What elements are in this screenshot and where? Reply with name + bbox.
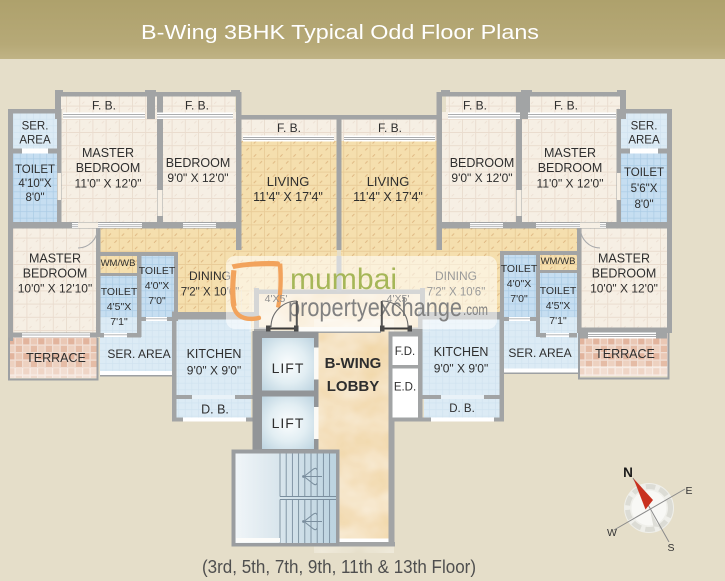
svg-text:11'0" X 12'0": 11'0" X 12'0"	[537, 177, 604, 191]
svg-text:TOILET: TOILET	[15, 164, 55, 176]
svg-text:DINING: DINING	[435, 269, 477, 283]
svg-text:.com: .com	[463, 302, 488, 319]
svg-text:D. B.: D. B.	[201, 403, 229, 417]
svg-text:MASTER: MASTER	[29, 252, 81, 266]
svg-text:TOILET: TOILET	[624, 167, 664, 179]
svg-text:W: W	[607, 527, 617, 539]
svg-text:propertyexchange: propertyexchange	[288, 292, 462, 322]
svg-text:MASTER: MASTER	[82, 146, 134, 160]
svg-text:TOILET: TOILET	[139, 265, 176, 277]
svg-text:D. B.: D. B.	[449, 403, 475, 415]
svg-text:10'0" X 12'0": 10'0" X 12'0"	[590, 282, 658, 296]
svg-text:SER.: SER.	[22, 121, 49, 133]
svg-text:TOILET: TOILET	[501, 263, 538, 275]
svg-text:TERRACE: TERRACE	[26, 351, 86, 365]
svg-text:E.D.: E.D.	[394, 382, 416, 394]
svg-text:S: S	[667, 542, 674, 554]
svg-text:(3rd, 5th, 7th, 9th, 11th & 13: (3rd, 5th, 7th, 9th, 11th & 13th Floor)	[202, 556, 476, 577]
svg-text:B-WING: B-WING	[325, 355, 382, 372]
svg-text:F. B.: F. B.	[463, 99, 487, 113]
svg-text:4'X5': 4'X5'	[387, 293, 410, 305]
svg-text:LIVING: LIVING	[367, 174, 410, 189]
svg-text:8'0": 8'0"	[634, 199, 653, 211]
svg-text:5'6"X: 5'6"X	[631, 183, 658, 195]
svg-text:DINING: DINING	[189, 269, 231, 283]
svg-text:10'0" X 12'10": 10'0" X 12'10"	[18, 282, 93, 296]
svg-text:AREA: AREA	[628, 135, 660, 147]
svg-text:11'4" X 17'4": 11'4" X 17'4"	[353, 190, 423, 204]
svg-text:KITCHEN: KITCHEN	[187, 347, 242, 361]
svg-text:9'0" X 12'0": 9'0" X 12'0"	[167, 171, 228, 185]
svg-text:WM/WB: WM/WB	[101, 258, 136, 269]
svg-text:F. B.: F. B.	[554, 99, 578, 113]
svg-text:11'0" X 12'0": 11'0" X 12'0"	[75, 177, 142, 191]
svg-text:7'1": 7'1"	[110, 316, 128, 328]
svg-text:E: E	[685, 485, 692, 497]
svg-text:9'0" X 9'0": 9'0" X 9'0"	[187, 364, 241, 378]
svg-text:F. B.: F. B.	[92, 99, 116, 113]
svg-text:BEDROOM: BEDROOM	[538, 161, 603, 175]
svg-text:4'0"X: 4'0"X	[507, 278, 531, 290]
svg-text:MASTER: MASTER	[544, 146, 596, 160]
svg-text:SER.: SER.	[631, 121, 658, 133]
svg-text:BEDROOM: BEDROOM	[592, 267, 657, 281]
svg-text:N: N	[623, 465, 633, 480]
svg-text:LIFT: LIFT	[272, 415, 305, 431]
svg-text:AREA: AREA	[19, 135, 51, 147]
svg-text:7'0": 7'0"	[148, 295, 166, 307]
svg-text:TOILET: TOILET	[540, 285, 577, 297]
svg-text:KITCHEN: KITCHEN	[434, 345, 489, 359]
svg-text:11'4" X 17'4": 11'4" X 17'4"	[253, 190, 323, 204]
svg-text:BEDROOM: BEDROOM	[76, 161, 141, 175]
svg-text:BEDROOM: BEDROOM	[450, 156, 515, 170]
svg-text:SER. AREA: SER. AREA	[508, 346, 571, 360]
svg-text:7'1": 7'1"	[549, 315, 567, 327]
svg-text:LIFT: LIFT	[272, 360, 305, 376]
svg-text:BEDROOM: BEDROOM	[166, 156, 231, 170]
svg-text:F. B.: F. B.	[277, 121, 301, 135]
svg-text:TOILET: TOILET	[101, 286, 138, 298]
svg-text:WM/WB: WM/WB	[541, 256, 576, 267]
svg-text:9'0" X 12'0": 9'0" X 12'0"	[451, 171, 512, 185]
svg-text:4'0"X: 4'0"X	[145, 280, 169, 292]
svg-text:B-Wing 3BHK Typical Odd Floor: B-Wing 3BHK Typical Odd Floor Plans	[141, 22, 539, 44]
svg-text:4'5"X: 4'5"X	[546, 300, 570, 312]
svg-text:F. B.: F. B.	[378, 121, 402, 135]
svg-text:BEDROOM: BEDROOM	[23, 267, 88, 281]
svg-text:F. B.: F. B.	[185, 99, 209, 113]
svg-text:7'0": 7'0"	[510, 293, 528, 305]
svg-text:MASTER: MASTER	[598, 252, 650, 266]
svg-text:LIVING: LIVING	[267, 174, 310, 189]
svg-text:4'X5': 4'X5'	[265, 293, 288, 305]
svg-text:4'10"X: 4'10"X	[18, 178, 51, 190]
svg-text:8'0": 8'0"	[25, 192, 44, 204]
svg-text:4'5"X: 4'5"X	[107, 301, 131, 313]
svg-text:9'0" X 9'0": 9'0" X 9'0"	[434, 362, 488, 376]
svg-text:F.D.: F.D.	[395, 346, 415, 358]
svg-text:LOBBY: LOBBY	[327, 378, 380, 395]
svg-text:SER. AREA: SER. AREA	[107, 347, 170, 361]
svg-text:TERRACE: TERRACE	[595, 347, 655, 361]
